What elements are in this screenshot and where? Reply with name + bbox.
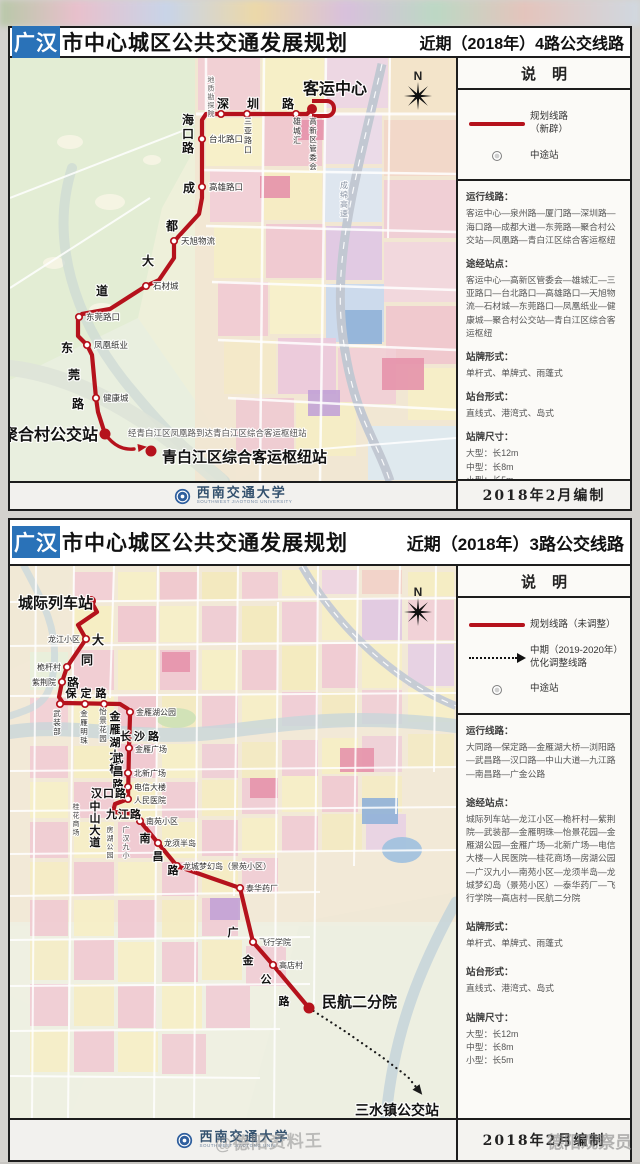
svg-text:小: 小 [123, 851, 130, 860]
svg-text:龙须半岛: 龙须半岛 [164, 838, 196, 848]
university-footer-4: 西南交通大学 SOUTHWEST JIAOTONG UNIVERSITY [10, 481, 456, 509]
svg-text:金: 金 [80, 708, 88, 718]
watermark-text: @德阳资料王 [215, 1126, 323, 1155]
svg-text:速: 速 [340, 210, 348, 219]
watermark-text: 德阳观察员 [547, 1128, 632, 1153]
svg-text:会: 会 [309, 161, 317, 171]
legend-item-label: 中途站 [530, 683, 559, 696]
dotted-arrow-icon [464, 653, 530, 663]
svg-text:大: 大 [92, 632, 104, 647]
svg-text:道: 道 [90, 835, 101, 849]
svg-text:凤凰纸业: 凤凰纸业 [94, 340, 128, 350]
svg-text:金: 金 [109, 709, 122, 723]
legend-sections: 运行线路：大同路—保定路—金雁湖大桥—浏阳路—武昌路—汉口路—中山大道—九江路—… [458, 713, 630, 1118]
svg-text:桂: 桂 [73, 802, 80, 811]
svg-text:高: 高 [340, 199, 348, 209]
svg-text:青白江区综合客运枢纽站: 青白江区综合客运枢纽站 [162, 448, 327, 466]
svg-text:雄: 雄 [293, 116, 301, 126]
svg-text:部: 部 [53, 726, 61, 736]
svg-text:中: 中 [90, 799, 101, 813]
svg-text:城: 城 [293, 127, 301, 136]
map-column-4: 客运中心深圳路海口路成都大道东莞路雄城汇高新区管委会三亚路口地质勘探院台北路口高… [10, 58, 456, 509]
info-section-heading: 站台形式： [466, 964, 622, 978]
legend-item-label: 中期（2019-2020年） 优化调整线路 [530, 645, 623, 671]
info-section-body: 大型：长12m 中型：长8m 小型：长5m [466, 447, 622, 479]
info-section: 途经站点：客运中心—高新区管委会—雄城汇—三亚路口—台北路口—高雄路口—天旭物流… [466, 256, 622, 340]
svg-text:园: 园 [99, 734, 107, 743]
svg-text:委: 委 [309, 152, 317, 162]
info-section-heading: 途经站点： [466, 795, 622, 809]
compile-date: 2018年2月编制 [458, 479, 630, 509]
legend-title: 说明 [458, 58, 630, 90]
svg-text:保定路: 保定路 [65, 686, 111, 700]
info-section: 站台形式：直线式、港湾式、岛式 [466, 389, 622, 420]
station-circle-icon [464, 151, 530, 161]
svg-text:客运中心: 客运中心 [303, 79, 367, 98]
svg-text:公: 公 [261, 973, 272, 986]
svg-text:莞: 莞 [68, 367, 80, 382]
legend-items: 规划线路 （新辟）中途站 [458, 90, 630, 179]
svg-text:汇: 汇 [293, 136, 301, 145]
legend-items: 规划线路（未调整）中期（2019-2020年） 优化调整线路中途站 [458, 598, 630, 713]
info-section: 站牌形式：单杆式、单牌式、雨蓬式 [466, 919, 622, 950]
svg-text:路: 路 [168, 863, 180, 877]
info-section-heading: 站牌形式： [466, 919, 622, 933]
svg-text:路: 路 [244, 135, 252, 145]
info-section-heading: 运行线路： [466, 723, 622, 737]
svg-text:台北路口: 台北路口 [209, 134, 243, 144]
svg-text:东莞路口: 东莞路口 [86, 312, 120, 322]
svg-text:口: 口 [182, 127, 194, 141]
svg-text:花: 花 [99, 724, 107, 734]
legend-panel-3: 说明 规划线路（未调整）中期（2019-2020年） 优化调整线路中途站 运行线… [456, 566, 630, 1160]
poster-body-3: 城际列车站龙江小区大同路桅杆村紫荆院保定路武装部金雁明珠怡景花园金雁湖公园金雁湖… [10, 566, 630, 1160]
legend-item: 中途站 [464, 150, 626, 163]
info-section-heading: 站台形式： [466, 389, 622, 403]
legend-item-label: 规划线路 （新辟） [530, 111, 568, 137]
info-section-body: 客运中心—高新区管委会—雄城汇—三亚路口—台北路口—高雄路口—天旭物流—石材城—… [466, 274, 622, 340]
svg-text:健康城: 健康城 [103, 393, 129, 403]
university-footer-3: 西南交通大学 SOUTHWEST JIAOTONG UNIV @德阳资料王 [10, 1118, 456, 1160]
route-line-icon [464, 623, 530, 627]
svg-text:海: 海 [182, 112, 194, 127]
svg-text:昌: 昌 [153, 850, 164, 863]
info-section-heading: 站牌尺寸： [466, 1010, 622, 1024]
poster-body-4: 客运中心深圳路海口路成都大道东莞路雄城汇高新区管委会三亚路口地质勘探院台北路口高… [10, 58, 630, 509]
svg-text:城际列车站: 城际列车站 [18, 594, 93, 612]
info-section: 站牌尺寸：大型：长12m 中型：长8m 小型：长5m [466, 1010, 622, 1068]
svg-text:雁: 雁 [80, 718, 88, 727]
city-name-highlight: 广汉 [12, 526, 60, 558]
map-column-3: 城际列车站龙江小区大同路桅杆村紫荆院保定路武装部金雁明珠怡景花园金雁湖公园金雁湖… [10, 566, 456, 1160]
svg-text:人民医院: 人民医院 [134, 795, 166, 805]
svg-text:路: 路 [182, 140, 195, 155]
svg-text:管: 管 [309, 143, 317, 153]
svg-text:高店村: 高店村 [279, 960, 303, 970]
svg-text:长沙路: 长沙路 [120, 729, 162, 743]
legend-item-label: 中途站 [530, 150, 559, 163]
route-line-icon [464, 122, 530, 126]
svg-text:三水镇公交站: 三水镇公交站 [355, 1102, 439, 1118]
info-section-body: 大同路—保定路—金雁湖大桥—浏阳路—武昌路—汉口路—中山大道—九江路—南昌路—广… [466, 741, 622, 781]
svg-text:金雁广场: 金雁广场 [135, 744, 167, 754]
info-section: 站牌尺寸：大型：长12m 中型：长8m 小型：长5m [466, 429, 622, 479]
svg-text:金雁湖公园: 金雁湖公园 [136, 707, 176, 717]
svg-text:北新广场: 北新广场 [134, 768, 166, 778]
route-subtitle: 近期（2018年）3路公交线路 [407, 530, 624, 555]
svg-text:成: 成 [340, 180, 348, 190]
svg-text:景: 景 [99, 716, 107, 725]
university-logo-icon [174, 488, 191, 505]
university-name: 西南交通大学 SOUTHWEST JIAOTONG UNIVERSITY [197, 487, 293, 505]
svg-text:质: 质 [208, 84, 215, 93]
svg-text:山: 山 [90, 811, 101, 825]
svg-text:南苑小区: 南苑小区 [146, 816, 178, 826]
page-title: 广汉 市中心城区公共交通发展规划 [12, 526, 348, 558]
legend-item: 中期（2019-2020年） 优化调整线路 [464, 645, 626, 671]
legend-item-label: 规划线路（未调整） [530, 619, 616, 632]
svg-text:成: 成 [183, 180, 195, 195]
svg-text:九江路: 九江路 [105, 807, 142, 821]
route4-poster-panel: 广汉 市中心城区公共交通发展规划 近期（2018年）4路公交线路 客运中心深圳路… [8, 26, 632, 511]
svg-text:公: 公 [107, 843, 114, 851]
svg-text:怡: 怡 [99, 706, 107, 716]
svg-text:N: N [414, 69, 423, 83]
svg-text:花: 花 [73, 811, 80, 820]
svg-text:新: 新 [309, 125, 317, 135]
station-circle-icon [464, 685, 530, 695]
svg-text:亚: 亚 [244, 127, 252, 136]
legend-item: 规划线路（未调整） [464, 619, 626, 632]
svg-text:明: 明 [80, 727, 88, 736]
svg-text:圳: 圳 [247, 96, 259, 111]
svg-text:紫荆院: 紫荆院 [32, 677, 56, 687]
svg-text:汉口路: 汉口路 [91, 786, 127, 800]
svg-text:雁: 雁 [110, 723, 121, 736]
svg-text:南: 南 [140, 831, 151, 845]
info-section-heading: 运行线路： [466, 189, 622, 203]
title-text: 市中心城区公共交通发展规划 [62, 527, 348, 557]
legend-item: 中途站 [464, 683, 626, 696]
info-section-heading: 途经站点： [466, 256, 622, 270]
svg-text:东: 东 [61, 340, 73, 355]
svg-text:场: 场 [73, 828, 80, 837]
info-section-heading: 站牌尺寸： [466, 429, 622, 443]
route3-poster-panel: 广汉 市中心城区公共交通发展规划 近期（2018年）3路公交线路 城际列车站龙江… [8, 518, 632, 1162]
route-map-3: 城际列车站龙江小区大同路桅杆村紫荆院保定路武装部金雁明珠怡景花园金雁湖公园金雁湖… [10, 566, 456, 1118]
svg-text:天旭物流: 天旭物流 [181, 236, 216, 246]
info-section-body: 城际列车站—龙江小区—桅杆村—紫荆院—武装部—金雁明珠—怡景花园—金雁湖公园—金… [466, 813, 622, 905]
info-section: 途经站点：城际列车站—龙江小区—桅杆村—紫荆院—武装部—金雁明珠—怡景花园—金雁… [466, 795, 622, 905]
legend-panel-4: 说明 规划线路 （新辟）中途站 运行线路：客运中心—泉州路—厦门路—深圳路—海口… [456, 58, 630, 509]
page-title: 广汉 市中心城区公共交通发展规划 [12, 26, 348, 58]
svg-text:路: 路 [282, 96, 295, 111]
university-logo-icon [176, 1132, 193, 1149]
info-section-body: 大型：长12m 中型：长8m 小型：长5m [466, 1028, 622, 1068]
svg-text:绵: 绵 [340, 190, 348, 200]
info-section-body: 客运中心—泉州路—厦门路—深圳路—海口路—成都大道—东莞路—聚合村公交站—凤凰路… [466, 207, 622, 247]
svg-text:广: 广 [228, 925, 239, 939]
svg-text:经青白江区凤凰路到达青白江区综合客运枢纽站: 经青白江区凤凰路到达青白江区综合客运枢纽站 [128, 428, 307, 438]
svg-text:同: 同 [81, 653, 93, 667]
legend-title: 说明 [458, 566, 630, 598]
cropped-map-strip [0, 0, 640, 26]
svg-text:昌: 昌 [113, 765, 124, 778]
svg-text:汉: 汉 [123, 835, 130, 843]
info-section-heading: 站牌形式： [466, 349, 622, 363]
svg-text:金: 金 [242, 953, 255, 967]
svg-text:大: 大 [90, 823, 101, 837]
compile-date: 2018年2月编制 德阳观察员 [458, 1118, 630, 1160]
svg-text:聚合村公交站: 聚合村公交站 [10, 425, 98, 444]
svg-text:高: 高 [309, 116, 317, 126]
svg-text:都: 都 [165, 218, 178, 233]
info-section: 站牌形式：单杆式、单牌式、雨蓬式 [466, 349, 622, 380]
svg-text:房: 房 [107, 825, 114, 834]
svg-text:道: 道 [96, 283, 108, 298]
info-section: 运行线路：大同路—保定路—金雁湖大桥—浏阳路—武昌路—汉口路—中山大道—九江路—… [466, 723, 622, 781]
svg-text:深: 深 [217, 96, 229, 111]
svg-text:湖: 湖 [110, 735, 121, 749]
svg-text:装: 装 [53, 717, 61, 727]
city-name-highlight: 广汉 [12, 26, 60, 58]
info-section-body: 直线式、港湾式、岛式 [466, 982, 622, 995]
svg-text:石材城: 石材城 [153, 281, 179, 291]
info-section: 站台形式：直线式、港湾式、岛式 [466, 964, 622, 995]
svg-text:口: 口 [244, 146, 252, 155]
svg-text:飞行学院: 飞行学院 [259, 937, 291, 947]
svg-text:龙城梦幻岛（景苑小区）: 龙城梦幻岛（景苑小区） [183, 861, 271, 871]
poster-page: 广汉 市中心城区公共交通发展规划 近期（2018年）4路公交线路 客运中心深圳路… [0, 0, 640, 1164]
svg-text:九: 九 [123, 842, 130, 851]
svg-text:珠: 珠 [80, 735, 88, 745]
svg-text:泰华药厂: 泰华药厂 [246, 883, 278, 893]
info-section-body: 单杆式、单牌式、雨蓬式 [466, 367, 622, 380]
route-subtitle: 近期（2018年）4路公交线路 [420, 30, 625, 54]
svg-text:桅杆村: 桅杆村 [37, 662, 61, 672]
poster-header-3: 广汉 市中心城区公共交通发展规划 近期（2018年）3路公交线路 [10, 520, 630, 566]
svg-text:高雄路口: 高雄路口 [209, 182, 243, 192]
info-section: 运行线路：客运中心—泉州路—厦门路—深圳路—海口路—成都大道—东莞路—聚合村公交… [466, 189, 622, 247]
info-section-body: 直线式、港湾式、岛式 [466, 407, 622, 420]
svg-text:N: N [414, 585, 423, 599]
legend-item: 规划线路 （新辟） [464, 111, 626, 137]
route-map-4: 客运中心深圳路海口路成都大道东莞路雄城汇高新区管委会三亚路口地质勘探院台北路口高… [10, 58, 456, 481]
legend-sections: 运行线路：客运中心—泉州路—厦门路—深圳路—海口路—成都大道—东莞路—聚合村公交… [458, 179, 630, 479]
title-text: 市中心城区公共交通发展规划 [62, 27, 348, 57]
svg-text:区: 区 [309, 135, 317, 144]
svg-text:武: 武 [53, 708, 61, 718]
svg-text:院: 院 [208, 109, 215, 118]
svg-text:民航二分院: 民航二分院 [322, 993, 397, 1011]
svg-text:广: 广 [123, 825, 130, 834]
info-section-body: 单杆式、单牌式、雨蓬式 [466, 937, 622, 950]
poster-header-4: 广汉 市中心城区公共交通发展规划 近期（2018年）4路公交线路 [10, 28, 630, 58]
svg-text:地: 地 [208, 75, 215, 84]
svg-text:商: 商 [73, 819, 80, 828]
svg-text:三: 三 [244, 117, 252, 126]
svg-text:勘: 勘 [208, 92, 215, 101]
svg-text:路: 路 [72, 396, 85, 411]
svg-text:园: 园 [107, 852, 114, 860]
svg-text:路: 路 [279, 994, 291, 1008]
svg-text:大: 大 [142, 253, 154, 268]
svg-text:武: 武 [113, 751, 124, 765]
svg-text:电信大楼: 电信大楼 [134, 782, 166, 792]
svg-text:龙江小区: 龙江小区 [48, 634, 80, 644]
svg-text:湖: 湖 [107, 834, 114, 843]
svg-text:探: 探 [208, 101, 215, 110]
